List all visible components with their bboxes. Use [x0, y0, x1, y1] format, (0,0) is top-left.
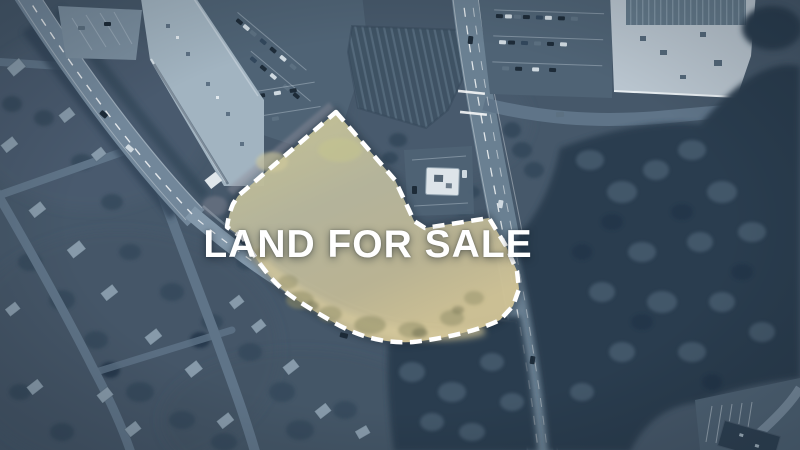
land-for-sale-aerial-view: LAND FOR SALE [0, 0, 800, 450]
land-for-sale-headline: LAND FOR SALE [203, 223, 532, 267]
